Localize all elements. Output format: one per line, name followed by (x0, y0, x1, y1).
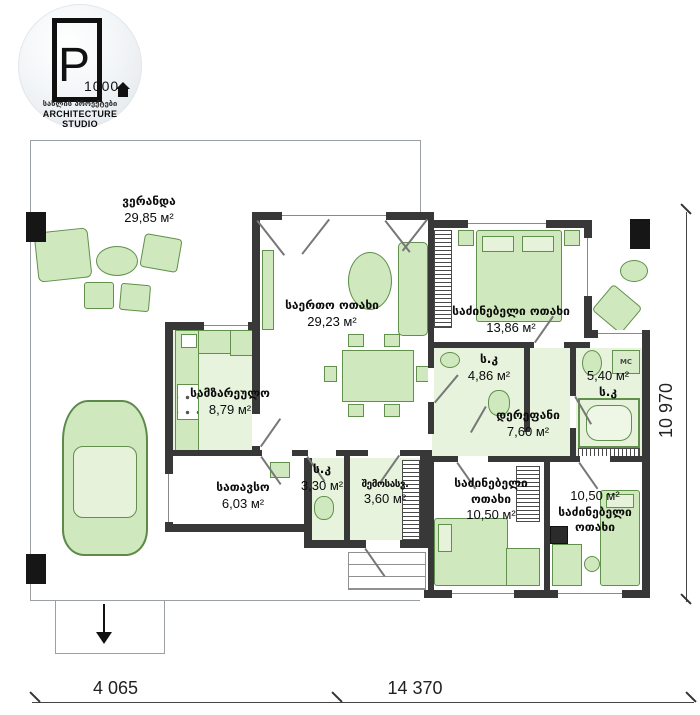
dim-label-bottom-right: 14 370 (335, 678, 495, 699)
wall (428, 462, 434, 590)
table-icon (96, 246, 138, 276)
wall (252, 212, 260, 332)
stool-icon (119, 283, 151, 313)
door-opening (262, 450, 292, 456)
terrace-line-top (30, 140, 420, 141)
room-label-kitchen: სამზარეულო 8,79 м² (168, 386, 292, 418)
room-label-veranda: ვერანდა 29,85 м² (83, 194, 215, 226)
wall-end-block (26, 212, 46, 242)
room-name: საძინებელი (438, 476, 544, 492)
room-name: ვერანდა (83, 194, 215, 210)
room-name: დერეფანი (468, 408, 588, 424)
door-opening (580, 456, 610, 462)
room-label-wc-small: ს.კ 3,30 м² (294, 462, 350, 494)
room-label-bedroom-2: საძინებელი ოთახი 10,50 м² (438, 476, 544, 524)
pillow-icon (522, 236, 554, 252)
room-area: 29,23 м² (260, 314, 404, 331)
logo-number: 1000 (84, 78, 119, 94)
dining-chair-icon (324, 366, 337, 382)
dim-line-right (686, 212, 687, 602)
desk-icon (506, 548, 540, 586)
door-opening (368, 450, 400, 456)
room-label-storage: სათავსო 6,03 м² (184, 480, 302, 512)
window (598, 330, 642, 338)
terrace-line-left (30, 140, 31, 601)
entrance-arrow-head (96, 632, 112, 644)
room-area: 8,79 м² (168, 402, 292, 419)
dim-line-bottom (32, 702, 694, 703)
room-name: საძინებელი (548, 505, 642, 521)
window (468, 220, 546, 228)
door-opening (308, 450, 336, 456)
logo-tagline-english: ARCHITECTURE STUDIO (24, 109, 136, 129)
nightstand-icon (564, 230, 580, 246)
house-icon-body (118, 89, 128, 97)
room-name: შემოსასვ. (344, 478, 426, 491)
stool-icon (84, 282, 114, 309)
dining-table-icon (342, 350, 414, 402)
window (584, 238, 592, 296)
dining-chair-icon (384, 404, 400, 417)
bathtub-inner (586, 405, 632, 441)
window (165, 474, 173, 522)
wall-end-block (630, 219, 650, 249)
floor-plan-canvas: МС (0, 0, 700, 715)
wall (642, 330, 650, 598)
wall (165, 524, 312, 532)
room-name: საძინებელი ოთახი (436, 304, 586, 320)
dim-tick (29, 691, 40, 702)
room-area: 5,40 м² (576, 368, 640, 385)
dining-chair-icon (348, 334, 364, 347)
room-name: ს.კ (576, 385, 640, 401)
garage-slab (55, 600, 165, 654)
logo-tagline-georgian: სახლის პროექტები (26, 99, 134, 108)
window (282, 212, 386, 220)
door-opening (366, 540, 400, 548)
room-label-bath-2: 5,40 м² ს.კ (576, 368, 640, 400)
window (452, 590, 514, 598)
room-name: სამზარეულო (168, 386, 292, 402)
room-area: 3,30 м² (294, 478, 350, 495)
room-name: სათავსო (184, 480, 302, 496)
nightstand-icon (458, 230, 474, 246)
room-label-corridor: დერეფანი 7,60 м² (468, 408, 588, 440)
room-area: 6,03 м² (184, 496, 302, 513)
room-area: 10,50 м² (438, 507, 544, 524)
room-name: ს.კ (452, 352, 526, 368)
room-area: 3,60 м² (344, 491, 426, 508)
door-opening (428, 368, 434, 402)
entrance-arrow (103, 604, 105, 634)
door-opening (534, 342, 564, 348)
chair-icon (584, 556, 600, 572)
car-icon (62, 400, 148, 556)
room-area: 10,50 м² (548, 488, 642, 505)
door-opening (458, 456, 488, 462)
room-label-bedroom-1: საძინებელი ოთახი 13,86 м² (436, 304, 586, 336)
room-name: საერთო ოთახი (260, 298, 404, 314)
studio-logo: P 1000 სახლის პროექტები ARCHITECTURE STU… (18, 4, 142, 128)
sink-icon (181, 334, 197, 348)
pillow-icon (438, 524, 452, 552)
dining-chair-icon (384, 334, 400, 347)
room-area: 13,86 м² (436, 320, 586, 337)
room-name: ოთახი (438, 492, 544, 508)
wall (428, 342, 590, 348)
toilet-icon (314, 496, 334, 520)
room-name: ოთახი (548, 520, 642, 536)
room-area: 4,86 м² (452, 368, 526, 385)
house-icon (116, 82, 130, 89)
car-roof (73, 446, 137, 518)
entrance-steps (348, 552, 426, 590)
room-name: ს.კ (294, 462, 350, 478)
room-label-bath-1: ს.კ 4,86 м² (452, 352, 526, 384)
wall-end-block (26, 554, 46, 584)
room-label-living: საერთო ოთახი 29,23 м² (260, 298, 404, 330)
room-label-entry: შემოსასვ. 3,60 м² (344, 478, 426, 508)
table-icon (620, 260, 648, 282)
window (558, 590, 622, 598)
window (204, 322, 248, 330)
room-label-bedroom-3: 10,50 м² საძინებელი ოთახი (548, 488, 642, 536)
door-opening (252, 414, 260, 446)
dining-chair-icon (348, 404, 364, 417)
pillow-icon (482, 236, 514, 252)
terrace-line-right (420, 140, 421, 213)
chair-icon (139, 233, 182, 273)
dim-label-bottom-left: 4 065 (58, 678, 173, 699)
room-area: 29,85 м² (83, 210, 215, 227)
room-area: 7,60 м² (468, 424, 588, 441)
dim-label-right: 10 970 (656, 350, 682, 470)
dim-tick (685, 691, 696, 702)
desk-icon (552, 544, 582, 586)
